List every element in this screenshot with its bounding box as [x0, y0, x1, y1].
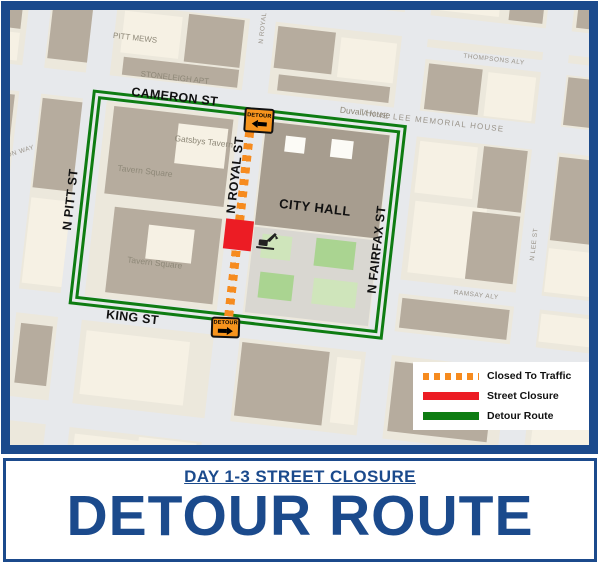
map-building [509, 10, 549, 24]
map-building [10, 10, 24, 29]
detour-route-swatch [423, 412, 479, 420]
map-building [184, 14, 245, 68]
map-building [477, 146, 528, 213]
legend-label: Street Closure [487, 390, 559, 402]
legend: Closed To Traffic Street Closure Detour … [413, 362, 589, 430]
map-building [79, 330, 190, 405]
detour-sign-top: DETOUR [243, 107, 275, 134]
construction-crane-icon [254, 227, 282, 252]
map-building [47, 10, 93, 63]
map-building [274, 26, 336, 74]
detour-flyer: CAMERON ST KING ST N PITT ST N ROYAL ST … [0, 0, 600, 566]
map-building [10, 26, 20, 61]
map-building [330, 357, 361, 425]
street-closure-marker [223, 218, 254, 251]
map-building [337, 37, 397, 83]
arrow-head [227, 327, 233, 335]
detour-sign-bottom-label: DETOUR [213, 319, 238, 326]
map-building [544, 248, 589, 300]
map-building [414, 141, 478, 199]
map-building [563, 77, 589, 133]
legend-label: Closed To Traffic [487, 370, 571, 382]
detour-arrow-left-icon [251, 119, 267, 129]
legend-row-detour-route: Detour Route [413, 410, 589, 422]
map-building [538, 314, 589, 350]
banner-title: DETOUR ROUTE [6, 488, 594, 545]
map-building [483, 72, 536, 121]
legend-row-closed-to-traffic: Closed To Traffic [413, 370, 589, 382]
legend-label: Detour Route [487, 410, 554, 422]
detour-sign-bottom: DETOUR [211, 317, 241, 339]
arrow-shaft [257, 122, 266, 127]
closed-to-traffic-swatch [423, 373, 479, 380]
map-frame: CAMERON ST KING ST N PITT ST N ROYAL ST … [1, 1, 598, 454]
map: CAMERON ST KING ST N PITT ST N ROYAL ST … [10, 10, 589, 445]
legend-row-street-closure: Street Closure [413, 390, 589, 402]
map-building [234, 342, 330, 425]
detour-arrow-right-icon [218, 326, 233, 336]
arrow-shaft [218, 329, 227, 333]
map-building [424, 63, 483, 115]
title-banner: DAY 1-3 STREET CLOSURE DETOUR ROUTE [3, 458, 597, 562]
street-closure-swatch [423, 392, 479, 400]
map-building [14, 323, 53, 386]
map-building [465, 211, 520, 284]
